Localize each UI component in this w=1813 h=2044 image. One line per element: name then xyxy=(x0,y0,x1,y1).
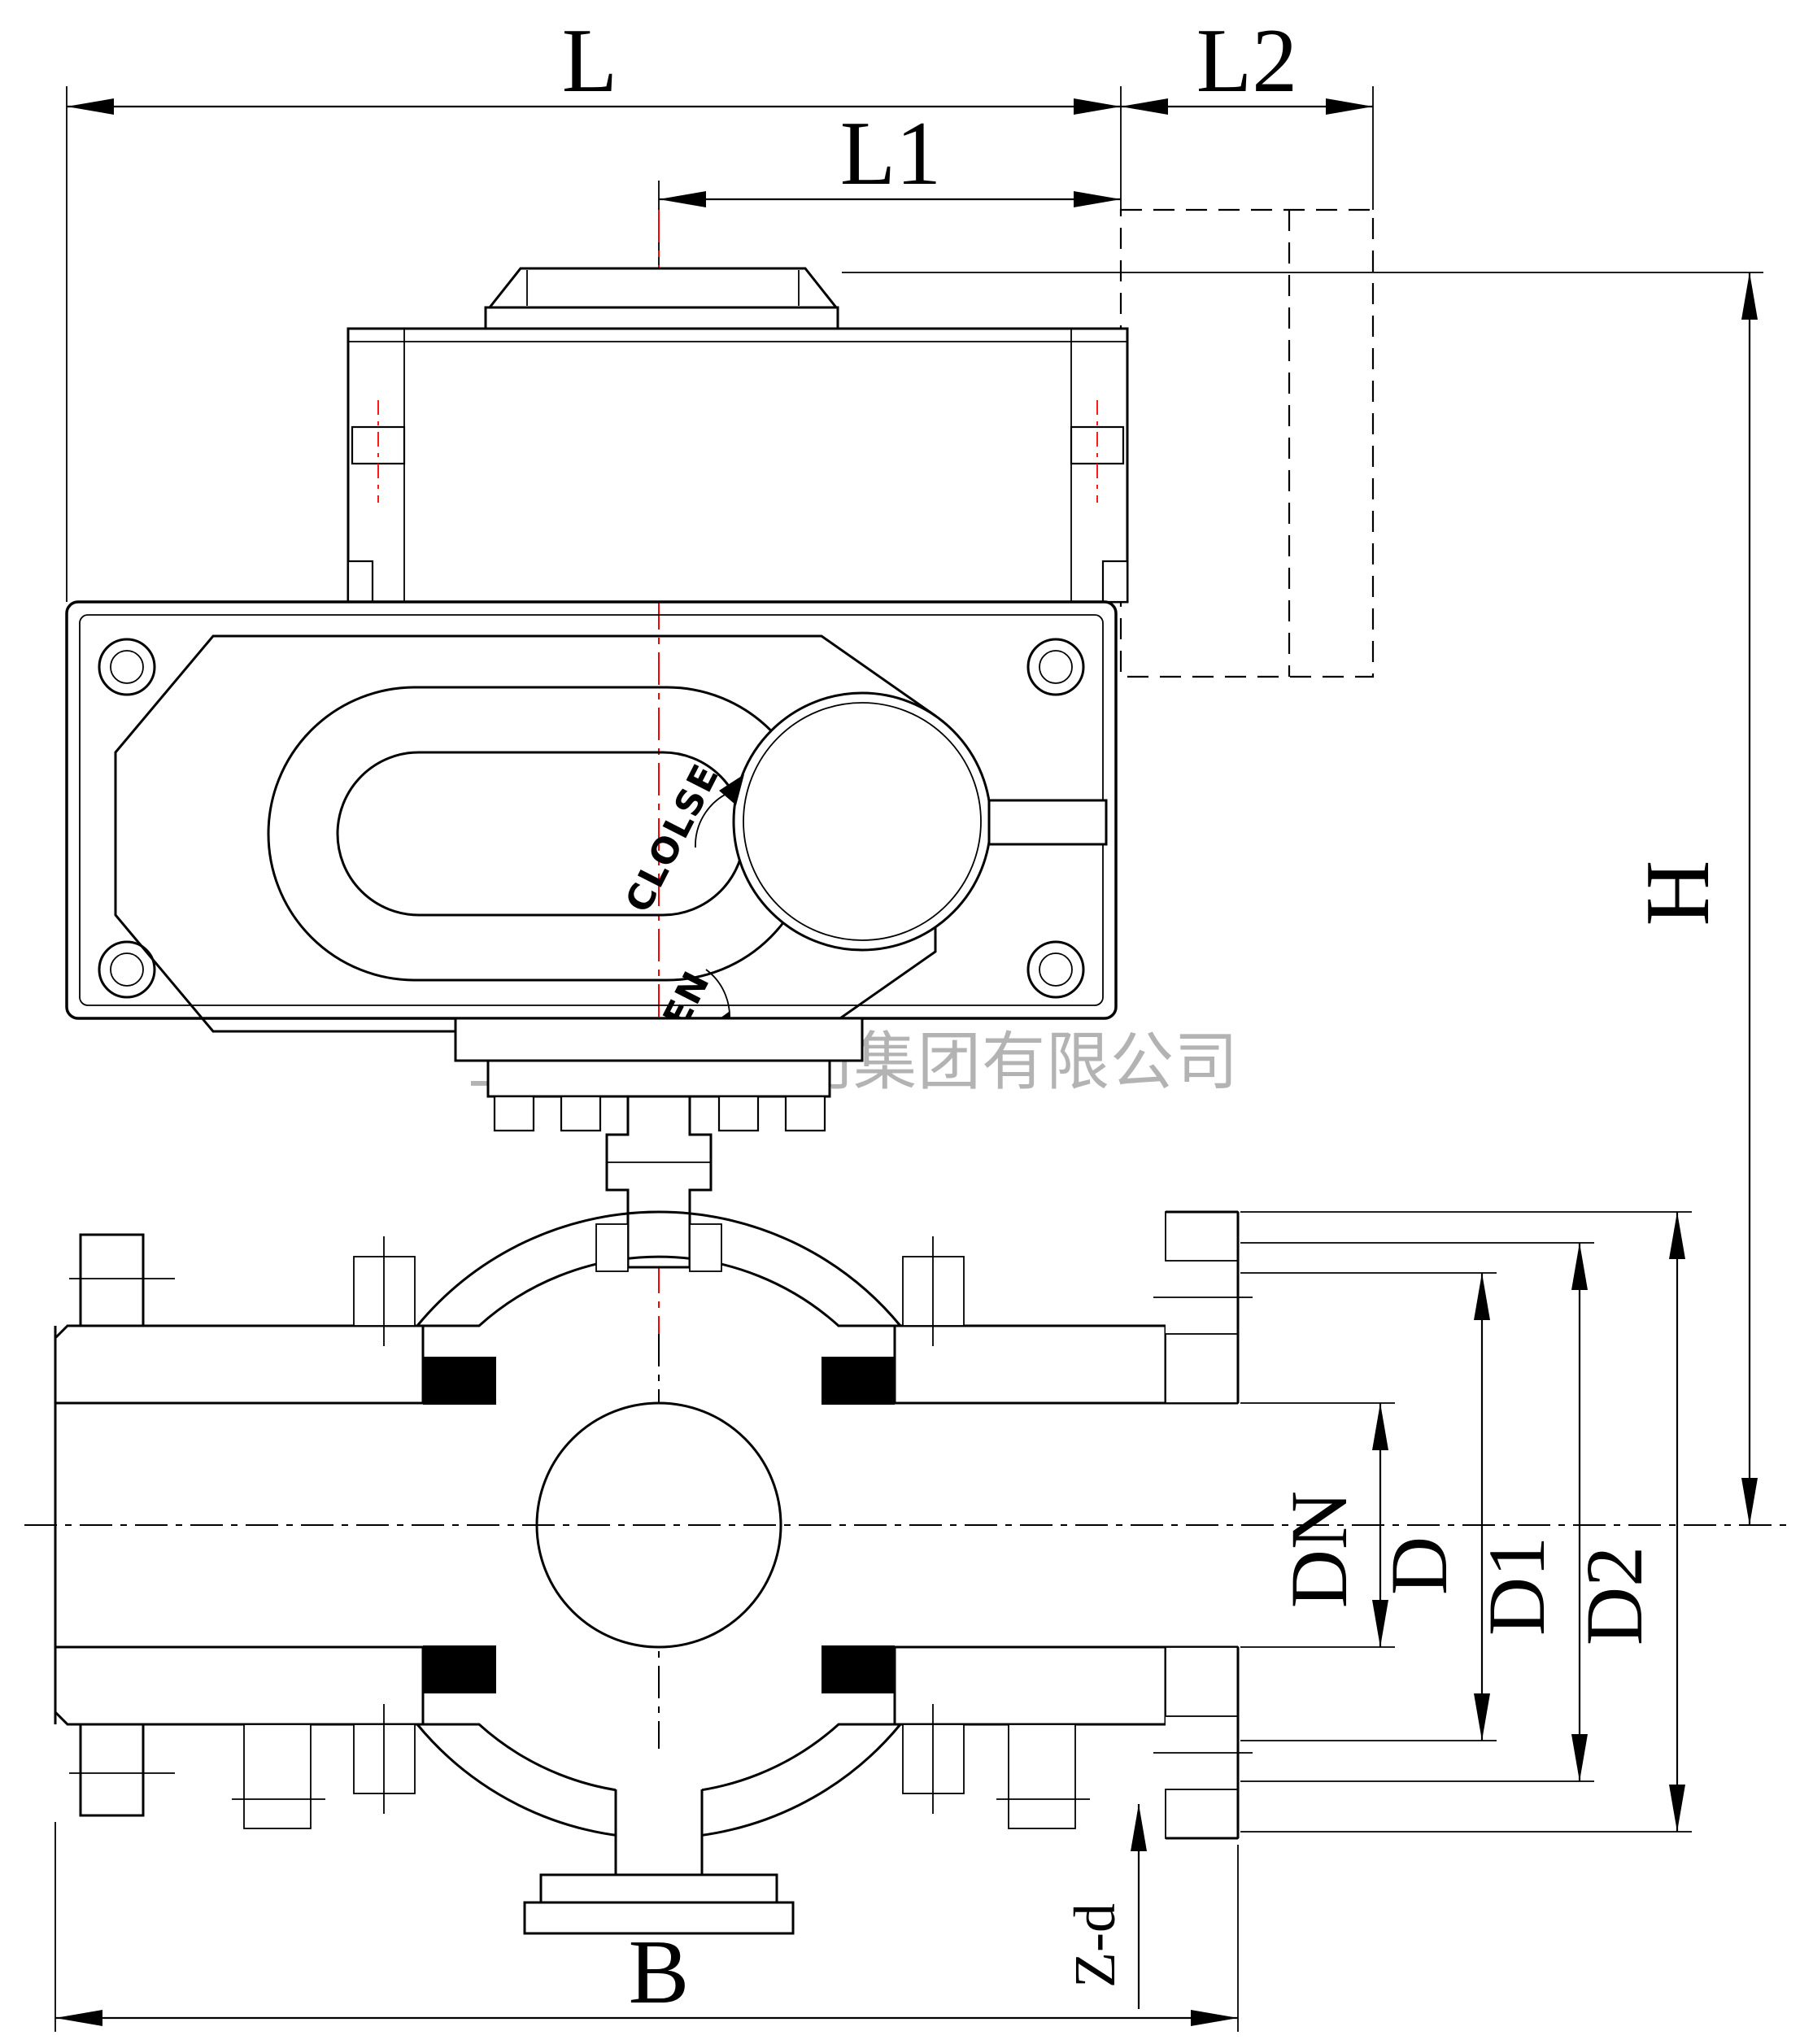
dim-label-DN: DN xyxy=(1274,1491,1364,1608)
actuator-top-cap xyxy=(486,268,838,329)
dim-label-D2: D2 xyxy=(1569,1546,1659,1645)
drawing-page: 上海湖泉阀门集团有限公司 L L1 L2 xyxy=(0,0,1813,2044)
dim-L1: L1 xyxy=(659,103,1121,207)
manual-override-dial xyxy=(734,693,991,950)
dim-label-L2: L2 xyxy=(1196,11,1297,111)
dim-label-H: H xyxy=(1628,861,1728,926)
dial-close-label: CLOLSE xyxy=(617,756,727,919)
dim-label-D: D xyxy=(1374,1536,1464,1595)
dim-label-Zd: Z-d xyxy=(1062,1903,1127,1988)
dim-L2: L2 xyxy=(1121,11,1373,115)
actuator-recess-outer xyxy=(268,687,813,980)
manual-override-handle xyxy=(989,800,1106,844)
actuator-mounting-bracket xyxy=(348,329,1127,602)
dashed-outline-box xyxy=(1121,210,1373,677)
dim-label-L1: L1 xyxy=(840,103,941,204)
valve-body xyxy=(55,1212,1253,1933)
dim-label-D1: D1 xyxy=(1471,1536,1562,1636)
dim-label-L: L xyxy=(562,11,617,111)
dim-L: L xyxy=(67,11,1121,115)
actuator-body: CLOLSE OPEN xyxy=(67,602,1116,1087)
dim-D: D xyxy=(1374,1273,1490,1741)
dim-label-B: B xyxy=(629,1922,690,2023)
valve-technical-drawing: 上海湖泉阀门集团有限公司 L L1 L2 xyxy=(0,0,1813,2044)
dim-H: H xyxy=(1628,272,1758,1525)
dim-Zd: Z-d xyxy=(1062,1804,1147,2009)
